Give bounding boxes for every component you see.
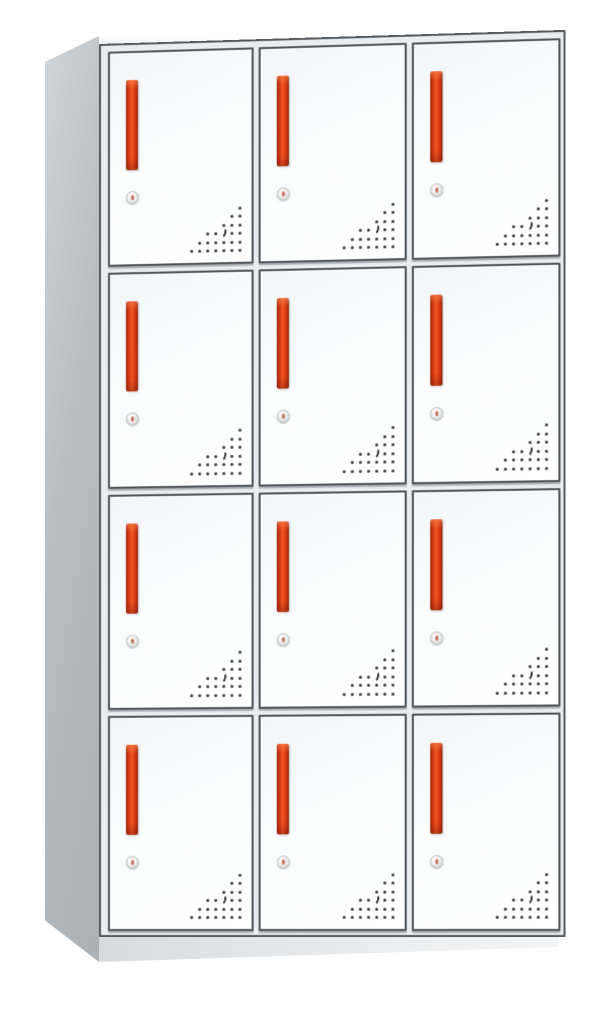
vent-hole — [231, 694, 234, 697]
vent-spacer — [199, 890, 202, 893]
vent-spacer — [520, 890, 523, 893]
vent-spacer — [215, 668, 218, 671]
vent-spacer — [342, 204, 345, 207]
vent-spacer — [350, 435, 353, 438]
vent-hole — [537, 432, 540, 435]
vent-spacer — [537, 873, 540, 876]
vent-hole — [529, 683, 532, 686]
vent-hole — [215, 694, 218, 697]
vent-spacer — [215, 446, 218, 449]
vent-hole — [391, 916, 394, 919]
vent-spacer — [342, 907, 345, 910]
vent-hole — [391, 237, 394, 240]
vent-hole — [231, 471, 234, 474]
vent-spacer — [350, 882, 353, 885]
vent-hole — [512, 225, 515, 228]
vent-hole — [215, 907, 218, 910]
locker-cabinet-photo — [0, 0, 605, 1009]
vent-spacer — [512, 890, 515, 893]
vent-spacer — [190, 873, 193, 876]
vent-hole — [239, 232, 242, 235]
vent-spacer — [512, 648, 515, 651]
vent-hole — [512, 898, 515, 901]
vent-spacer — [359, 212, 362, 215]
vent-hole — [231, 899, 234, 902]
vent-spacer — [190, 438, 193, 441]
vent-spacer — [375, 873, 378, 876]
vent-hole — [383, 469, 386, 472]
vent-hole — [537, 665, 540, 668]
vent-hole — [391, 684, 394, 687]
vent-spacer — [512, 657, 515, 660]
vent-hole — [367, 246, 370, 249]
vent-spacer — [367, 650, 370, 653]
locker-door — [411, 38, 560, 260]
vent-hole — [231, 677, 234, 680]
vent-spacer — [231, 873, 234, 876]
vent-spacer — [359, 427, 362, 430]
vent-hole — [391, 899, 394, 902]
vent-spacer — [223, 437, 226, 440]
vent-spacer — [190, 224, 193, 227]
red-handle — [430, 295, 442, 386]
cam-lock-icon — [126, 191, 139, 204]
vent-spacer — [190, 216, 193, 219]
vent-spacer — [504, 433, 507, 436]
vent-hole — [512, 243, 515, 246]
vent-hole — [383, 228, 386, 231]
vent-spacer — [342, 650, 345, 653]
vent-crescent-cutout — [223, 454, 226, 457]
vent-hole — [383, 220, 386, 223]
vent-spacer — [223, 660, 226, 663]
vent-spacer — [520, 441, 523, 444]
vent-crescent-cutout — [529, 449, 532, 452]
vent-hole — [359, 452, 362, 455]
vent-hole — [223, 463, 226, 466]
vent-spacer — [512, 200, 515, 203]
vent-spacer — [496, 459, 499, 462]
cam-lock-icon — [277, 187, 290, 200]
vent-spacer — [190, 899, 193, 902]
vent-hole — [537, 657, 540, 660]
vent-spacer — [223, 215, 226, 218]
vent-hole — [215, 241, 218, 244]
lock-keyhole — [435, 859, 438, 864]
vent-crescent-cutout — [375, 229, 378, 232]
crescent-shape — [217, 227, 227, 240]
vent-hole — [231, 659, 234, 662]
vent-hole — [239, 899, 242, 902]
vent-hole — [367, 452, 370, 455]
vent-spacer — [504, 890, 507, 893]
locker-door — [259, 266, 406, 486]
vent-hole — [383, 443, 386, 446]
vent-hole — [545, 233, 548, 236]
vent-hole — [207, 916, 210, 919]
vent-spacer — [504, 424, 507, 427]
vent-spacer — [199, 668, 202, 671]
vent-spacer — [359, 667, 362, 670]
vent-hole — [350, 916, 353, 919]
vent-hole — [223, 685, 226, 688]
vent-spacer — [342, 452, 345, 455]
vent-spacer — [496, 433, 499, 436]
vent-hole — [342, 470, 345, 473]
lock-keyhole — [282, 859, 285, 864]
vent-hole — [375, 907, 378, 910]
vent-spacer — [190, 882, 193, 885]
vent-hole — [545, 458, 548, 461]
vent-hole — [512, 458, 515, 461]
vent-holes-icon — [190, 873, 241, 919]
vent-spacer — [190, 677, 193, 680]
vent-hole — [537, 691, 540, 694]
vent-spacer — [520, 873, 523, 876]
vent-hole — [545, 216, 548, 219]
vent-hole — [512, 907, 515, 910]
vent-spacer — [512, 208, 515, 211]
vent-holes-icon — [190, 429, 241, 476]
vent-spacer — [512, 665, 515, 668]
vent-spacer — [504, 898, 507, 901]
vent-spacer — [207, 224, 210, 227]
lock-keyhole — [282, 637, 285, 642]
vent-spacer — [342, 873, 345, 876]
vent-spacer — [367, 873, 370, 876]
vent-hole — [375, 469, 378, 472]
vent-hole — [239, 694, 242, 697]
vent-hole — [199, 907, 202, 910]
vent-spacer — [375, 435, 378, 438]
vent-hole — [391, 675, 394, 678]
vent-hole — [545, 881, 548, 884]
cam-lock-icon — [430, 855, 443, 868]
vent-hole — [545, 423, 548, 426]
vent-spacer — [496, 450, 499, 453]
vent-hole — [383, 211, 386, 214]
vent-spacer — [529, 432, 532, 435]
vent-hole — [375, 684, 378, 687]
vent-hole — [383, 916, 386, 919]
vent-spacer — [199, 873, 202, 876]
vent-spacer — [520, 881, 523, 884]
vent-spacer — [223, 651, 226, 654]
vent-spacer — [529, 657, 532, 660]
vent-hole — [359, 684, 362, 687]
vent-hole — [391, 658, 394, 661]
vent-hole — [239, 916, 242, 919]
vent-hole — [239, 429, 242, 432]
vent-hole — [239, 463, 242, 466]
vent-hole — [512, 450, 515, 453]
vent-spacer — [367, 444, 370, 447]
vent-hole — [391, 220, 394, 223]
vent-hole — [207, 694, 210, 697]
vent-hole — [504, 683, 507, 686]
vent-spacer — [529, 199, 532, 202]
vent-spacer — [367, 881, 370, 884]
vent-spacer — [350, 676, 353, 679]
vent-hole — [537, 907, 540, 910]
vent-hole — [239, 676, 242, 679]
vent-spacer — [359, 882, 362, 885]
vent-hole — [537, 441, 540, 444]
vent-hole — [359, 899, 362, 902]
vent-hole — [529, 467, 532, 470]
vent-hole — [207, 907, 210, 910]
vent-hole — [231, 685, 234, 688]
vent-hole — [383, 667, 386, 670]
vent-spacer — [359, 435, 362, 438]
vent-hole — [391, 460, 394, 463]
vent-spacer — [342, 221, 345, 224]
vent-spacer — [231, 206, 234, 209]
vent-hole — [383, 907, 386, 910]
vent-hole — [231, 454, 234, 457]
vent-hole — [359, 246, 362, 249]
vent-hole — [496, 916, 499, 919]
vent-spacer — [367, 203, 370, 206]
vent-hole — [383, 684, 386, 687]
vent-spacer — [199, 455, 202, 458]
vent-hole — [367, 916, 370, 919]
vent-hole — [359, 693, 362, 696]
vent-hole — [545, 907, 548, 910]
vent-hole — [367, 461, 370, 464]
vent-spacer — [504, 873, 507, 876]
lock-keyhole — [131, 860, 134, 865]
vent-hole — [207, 677, 210, 680]
vent-spacer — [342, 212, 345, 215]
vent-spacer — [504, 657, 507, 660]
vent-hole — [504, 243, 507, 246]
vent-spacer — [496, 234, 499, 237]
vent-hole — [231, 249, 234, 252]
crescent-shape — [370, 446, 381, 459]
vent-hole — [391, 211, 394, 214]
vent-hole — [231, 446, 234, 449]
vent-spacer — [537, 648, 540, 651]
vent-hole — [223, 241, 226, 244]
vent-spacer — [199, 233, 202, 236]
cam-lock-icon — [277, 633, 290, 646]
vent-hole — [239, 685, 242, 688]
vent-hole — [545, 199, 548, 202]
crescent-shape — [370, 669, 381, 682]
vent-hole — [367, 237, 370, 240]
vent-spacer — [199, 446, 202, 449]
vent-hole — [537, 225, 540, 228]
vent-hole — [537, 683, 540, 686]
vent-hole — [391, 443, 394, 446]
vent-spacer — [190, 233, 193, 236]
vent-spacer — [223, 429, 226, 432]
vent-spacer — [350, 890, 353, 893]
vent-spacer — [215, 215, 218, 218]
red-handle — [277, 744, 289, 835]
vent-spacer — [223, 882, 226, 885]
vent-spacer — [342, 899, 345, 902]
vent-hole — [375, 461, 378, 464]
vent-hole — [529, 907, 532, 910]
vent-hole — [391, 228, 394, 231]
lock-keyhole — [131, 195, 134, 200]
vent-spacer — [350, 221, 353, 224]
locker-door — [411, 712, 560, 931]
vent-spacer — [199, 651, 202, 654]
vent-hole — [383, 658, 386, 661]
vent-hole — [231, 241, 234, 244]
vent-crescent-cutout — [375, 899, 378, 902]
vent-spacer — [504, 674, 507, 677]
vent-hole — [239, 659, 242, 662]
vent-spacer — [223, 207, 226, 210]
vent-hole — [529, 916, 532, 919]
vent-spacer — [215, 660, 218, 663]
vent-spacer — [367, 426, 370, 429]
vent-hole — [512, 683, 515, 686]
vent-hole — [537, 242, 540, 245]
vent-holes-icon — [342, 873, 394, 919]
vent-spacer — [342, 427, 345, 430]
vent-hole — [537, 458, 540, 461]
vent-hole — [496, 691, 499, 694]
vent-spacer — [383, 203, 386, 206]
vent-hole — [383, 435, 386, 438]
vent-hole — [512, 467, 515, 470]
vent-hole — [383, 890, 386, 893]
vent-hole — [239, 249, 242, 252]
vent-spacer — [367, 435, 370, 438]
cam-lock-icon — [430, 631, 443, 644]
vent-hole — [512, 674, 515, 677]
vent-spacer — [342, 890, 345, 893]
cam-lock-icon — [126, 634, 139, 647]
vent-spacer — [207, 216, 210, 219]
vent-spacer — [520, 208, 523, 211]
vent-spacer — [520, 217, 523, 220]
lock-keyhole — [435, 635, 438, 640]
vent-hole — [231, 668, 234, 671]
vent-spacer — [350, 444, 353, 447]
vent-hole — [520, 458, 523, 461]
vent-spacer — [520, 424, 523, 427]
vent-hole — [545, 648, 548, 651]
vent-hole — [520, 225, 523, 228]
vent-spacer — [190, 651, 193, 654]
vent-hole — [239, 223, 242, 226]
red-handle — [126, 523, 138, 613]
vent-spacer — [207, 207, 210, 210]
locker-door — [108, 47, 254, 267]
vent-hole — [545, 432, 548, 435]
vent-spacer — [512, 881, 515, 884]
vent-hole — [239, 446, 242, 449]
vent-spacer — [199, 224, 202, 227]
vent-hole — [545, 674, 548, 677]
vent-hole — [239, 882, 242, 885]
vent-spacer — [215, 882, 218, 885]
vent-spacer — [350, 667, 353, 670]
vent-hole — [231, 224, 234, 227]
vent-spacer — [350, 658, 353, 661]
vent-spacer — [342, 229, 345, 232]
vent-hole — [190, 472, 193, 475]
locker-door — [108, 270, 254, 489]
vent-spacer — [359, 890, 362, 893]
vent-crescent-cutout — [529, 674, 532, 677]
vent-spacer — [367, 220, 370, 223]
vent-hole — [199, 916, 202, 919]
vent-hole — [199, 694, 202, 697]
red-handle — [126, 80, 138, 170]
vent-hole — [239, 240, 242, 243]
vent-spacer — [215, 224, 218, 227]
vent-crescent-cutout — [223, 899, 226, 902]
vent-hole — [342, 693, 345, 696]
vent-hole — [520, 674, 523, 677]
vent-hole — [231, 907, 234, 910]
vent-hole — [199, 685, 202, 688]
vent-spacer — [512, 217, 515, 220]
cam-lock-icon — [277, 410, 290, 423]
vent-hole — [391, 873, 394, 876]
vent-spacer — [215, 207, 218, 210]
vent-hole — [359, 229, 362, 232]
vent-holes-icon — [496, 423, 548, 470]
vent-hole — [537, 881, 540, 884]
vent-hole — [504, 691, 507, 694]
vent-hole — [375, 692, 378, 695]
vent-spacer — [496, 657, 499, 660]
vent-hole — [529, 458, 532, 461]
vent-spacer — [231, 651, 234, 654]
vent-spacer — [350, 650, 353, 653]
vent-spacer — [537, 199, 540, 202]
vent-spacer — [496, 907, 499, 910]
vent-hole — [359, 238, 362, 241]
vent-spacer — [199, 677, 202, 680]
vent-hole — [504, 467, 507, 470]
vent-spacer — [215, 890, 218, 893]
crescent-shape — [217, 671, 227, 684]
vent-spacer — [350, 452, 353, 455]
vent-hole — [391, 245, 394, 248]
vent-holes-icon — [496, 873, 548, 919]
vent-hole — [342, 247, 345, 250]
vent-spacer — [207, 882, 210, 885]
vent-hole — [231, 215, 234, 218]
vent-hole — [504, 234, 507, 237]
vent-hole — [223, 916, 226, 919]
vent-crescent-cutout — [529, 898, 532, 901]
vent-spacer — [496, 200, 499, 203]
vent-hole — [215, 916, 218, 919]
vent-hole — [537, 216, 540, 219]
vent-hole — [537, 449, 540, 452]
vent-spacer — [207, 890, 210, 893]
vent-spacer — [520, 657, 523, 660]
vent-hole — [391, 907, 394, 910]
vent-hole — [391, 649, 394, 652]
vent-hole — [231, 882, 234, 885]
vent-spacer — [504, 217, 507, 220]
vent-spacer — [375, 211, 378, 214]
vent-hole — [529, 242, 532, 245]
vent-spacer — [342, 461, 345, 464]
vent-hole — [350, 684, 353, 687]
